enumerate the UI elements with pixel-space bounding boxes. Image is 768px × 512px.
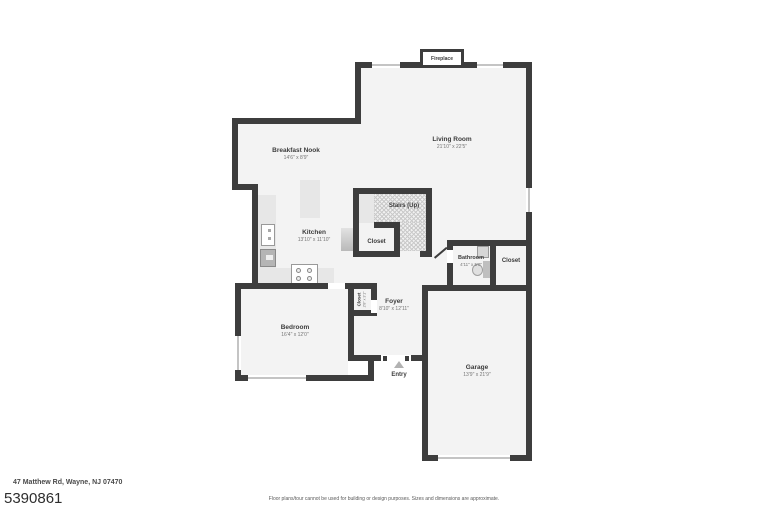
toilet-bowl-icon [472, 264, 483, 276]
disclaimer-text: Floor plans/tour cannot be used for buil… [0, 496, 768, 502]
wall [510, 455, 532, 461]
entry-door-jamb [383, 356, 387, 361]
kitchen-counter-stairs-wall [341, 228, 353, 251]
stove-burner-icon [307, 276, 312, 281]
toilet-tank-icon [483, 261, 490, 278]
wall [353, 251, 398, 257]
wall [420, 251, 432, 257]
room-floor-breakfast-nook [238, 124, 359, 190]
property-address: 47 Matthew Rd, Wayne, NJ 07470 [13, 479, 122, 486]
stove-burner-icon [296, 268, 301, 273]
door-opening-bedroom [328, 283, 345, 289]
entry-door-jamb [405, 356, 409, 361]
wall [426, 188, 432, 257]
stove-burner-icon [307, 268, 312, 273]
floorplan-page: Fireplace Living Room 21'10" x 22'5" Bre… [0, 0, 768, 512]
garage-door-line [438, 457, 510, 459]
room-floor-garage [428, 291, 526, 455]
wall [252, 184, 258, 289]
wall [490, 240, 496, 291]
kitchen-pantry-counter [359, 194, 374, 223]
wall [232, 118, 361, 124]
stove-icon [291, 264, 318, 284]
window-line [372, 64, 400, 66]
fireplace-label: Fireplace [431, 56, 453, 62]
door-opening-foyer-closet [371, 300, 377, 313]
wall [235, 283, 377, 289]
dishwasher-handle [266, 255, 273, 260]
wall [353, 188, 359, 257]
room-floor-foyer-closet [354, 289, 371, 310]
window-line [528, 188, 530, 212]
wall [422, 455, 438, 461]
wall [353, 188, 432, 194]
room-floor-bedroom [241, 289, 348, 375]
kitchen-sink-icon [261, 224, 275, 246]
kitchen-counter-peninsula [300, 180, 320, 218]
window-line [477, 64, 503, 66]
kitchen-sink-knob [268, 237, 271, 240]
stairs-hatch [374, 194, 426, 222]
wall [355, 62, 361, 124]
wall [368, 355, 374, 381]
window-line [248, 377, 306, 379]
wall [447, 240, 453, 291]
wall [422, 285, 532, 291]
wall [348, 355, 381, 361]
wall [526, 62, 532, 461]
wall [394, 222, 400, 257]
stairs-hatch [400, 222, 426, 251]
stove-burner-icon [296, 276, 301, 281]
fireplace-box: Fireplace [420, 49, 464, 68]
wall [422, 285, 428, 461]
wall [348, 283, 354, 361]
entry-arrow-icon [394, 361, 404, 368]
wall [232, 118, 238, 190]
entry-label: Entry [379, 371, 419, 380]
room-name: Entry [391, 371, 406, 379]
bathroom-sink-icon [477, 246, 489, 258]
window-line [237, 336, 239, 370]
door-opening-bathroom [447, 250, 453, 263]
kitchen-sink-knob [268, 229, 271, 232]
